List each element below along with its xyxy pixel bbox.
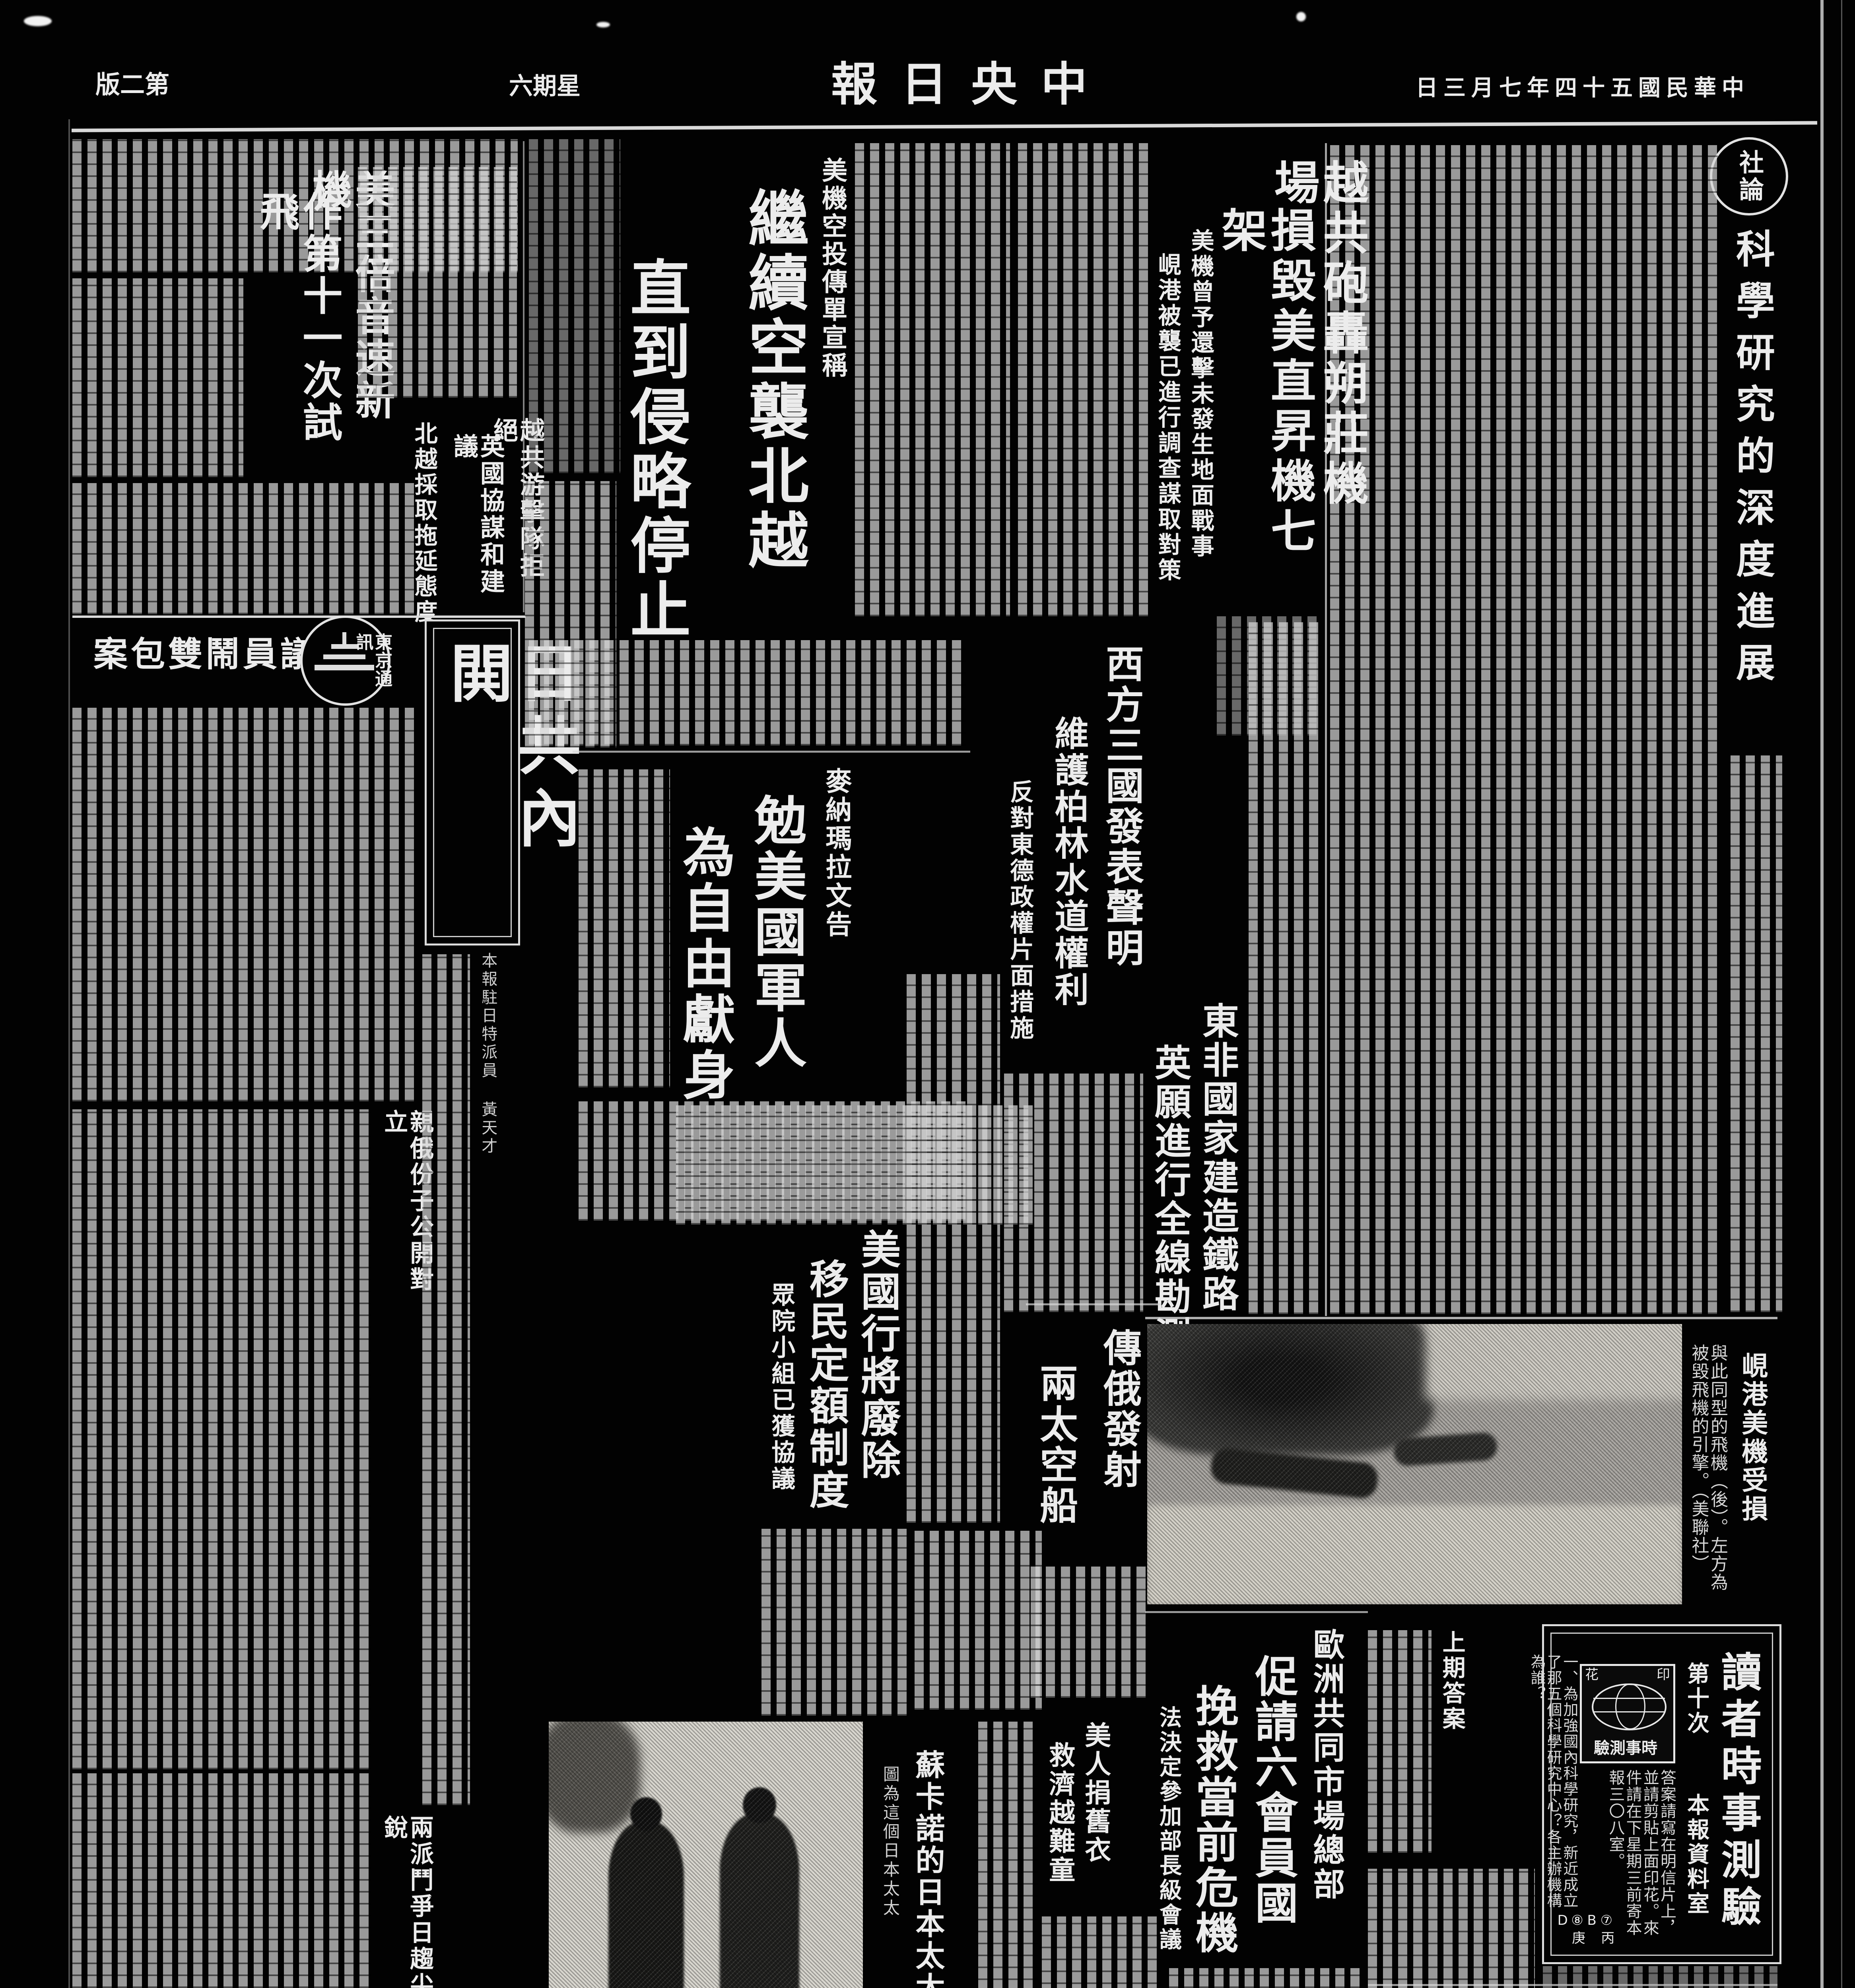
immigration-subhead: 眾院小組已獲協議 [768, 1282, 794, 1505]
sukarno-caption-title: 蘇卡諾的日本太太 [911, 1749, 943, 1988]
body-text-block [907, 974, 1000, 1523]
tokyo-correspondence-label: 東京通訊 [354, 633, 391, 697]
soviet-ships-headline-1: 傳俄發射 [1098, 1328, 1140, 1519]
scan-speck [1296, 12, 1306, 21]
quiz-stamp-bottom-label: 時事測驗 [1594, 1740, 1657, 1757]
globe-parallel [1593, 1698, 1665, 1699]
main-subhead-2: 峴港被襲已進行調查謀取對策 [1155, 252, 1180, 630]
berlin-headline-2: 維護柏林水道權利 [1050, 716, 1087, 1034]
photo-grain [549, 1722, 863, 1988]
page-number-label: 第二版 [95, 72, 169, 98]
body-text-block [1368, 1869, 1535, 1988]
editorial-emblem-label: 社論 [1736, 149, 1762, 204]
charity-line1: 美人捐舊衣 [1082, 1722, 1110, 1881]
berlin-headline-1: 西方三國發表聲明 [1101, 644, 1142, 990]
body-text-block [72, 483, 414, 614]
column-rule [523, 141, 524, 612]
body-text-block [579, 769, 670, 1087]
body-text-block [72, 278, 243, 477]
globe-parallel [1593, 1711, 1665, 1712]
weekday-label: 星期六 [509, 74, 581, 99]
body-text-block [915, 1531, 1042, 1710]
charity-line2: 救濟越難童 [1046, 1741, 1074, 1901]
mcnamara-headline-2: 為自由獻身 [676, 825, 733, 1103]
ecm-subhead: 法決定參加部長級會議 [1156, 1706, 1180, 1964]
quiz-prev-answers-label: 上期答案 [1439, 1630, 1465, 1749]
berlin-headline-3: 反對東德政權片面措施 [1007, 779, 1033, 1066]
quiz-stamp: 花 印 時事測驗 [1580, 1664, 1675, 1763]
section-rule [1368, 1984, 1777, 1986]
immigration-headline-2: 移民定額制度 [804, 1258, 847, 1517]
africa-rail-headline-1: 東非國家建造鐵路 [1198, 1002, 1237, 1332]
body-text-block [978, 1722, 1038, 1988]
jcp-headline-box: 日共內閧 [425, 619, 520, 945]
quiz-title: 讀者時事測驗 [1716, 1651, 1760, 1933]
tokyo-correspondence-logo: 東京通訊 [300, 615, 390, 706]
ecm-headline-2: 促請六會員國 [1249, 1654, 1296, 1948]
photo-sukarno-japanese-wife [549, 1722, 863, 1988]
leaflets-headline-2: 直到侵略停止 [622, 256, 688, 646]
mcnamara-kicker: 麥納瑪拉文告 [822, 767, 851, 954]
left-margin-line [68, 119, 70, 1988]
vc-refusal-line3: 北越採取拖延態度 [412, 421, 437, 628]
body-text-block [72, 1773, 371, 1988]
section-rule [1145, 1611, 1368, 1613]
quiz-answers: ⑦丙B ⑧庚D [1555, 1912, 1614, 1956]
pagoda-icon-spire [342, 632, 346, 644]
leaflets-kicker: 美機空投傳單宣稱 [818, 157, 846, 396]
mcnamara-headline-1: 勉美國軍人 [748, 793, 804, 1072]
body-text-block [1031, 1567, 1150, 1698]
quiz-stamp-corner-right: 印 [1657, 1668, 1670, 1682]
danang-photo-caption: 與此同型的飛機（後）。左方為被毀飛機的引擎。（美聯社） [1689, 1344, 1727, 1598]
body-text-block [1368, 1630, 1432, 1853]
body-text-block [676, 1105, 1034, 1225]
scan-speck [24, 16, 52, 26]
body-text-block [72, 708, 414, 1101]
scan-speck [596, 22, 610, 27]
quiz-stamp-corner-left: 花 [1585, 1668, 1599, 1682]
body-text-block [1018, 143, 1149, 616]
newspaper-page-scan: 第二版 星期六 中央日報 中華民國五十四年七月三日 社論 科學研究的深度進展 越… [0, 0, 1855, 1988]
editorial-headline: 科學研究的深度進展 [1731, 229, 1773, 730]
quiz-unit: 本報資料室 [1684, 1793, 1708, 1928]
body-text-block [422, 954, 470, 1805]
body-text-block [1731, 755, 1782, 1312]
body-text-block [525, 481, 616, 747]
jcp-subhead-factions: 兩派鬥爭日趨尖銳 [381, 1815, 433, 1988]
main-headline-line2: 損毀美直昇機七架 [1216, 207, 1314, 604]
body-text-block [529, 139, 620, 473]
quiz-edition: 第十次 [1684, 1662, 1708, 1781]
jcp-byline: 本報駐日特派員 黃天才 [479, 952, 496, 1175]
globe-icon [1592, 1683, 1667, 1730]
body-text-block [1249, 622, 1322, 1314]
photo-grain [1147, 1324, 1682, 1604]
section-rule [72, 615, 526, 618]
quiz-box: 讀者時事測驗 第十次 本報資料室 花 印 時事測驗 答案請寫在明信片上，並請剪貼… [1542, 1624, 1781, 1964]
film-edge-line [1820, 0, 1824, 1988]
ecm-headline-1: 歐洲共同市場總部 [1309, 1628, 1343, 1906]
film-edge-line-2 [1841, 0, 1842, 1988]
xb70-headline-2: 作第十一次試飛 [254, 191, 340, 485]
editorial-emblem: 社論 [1710, 137, 1788, 215]
body-text-block [1330, 145, 1718, 1314]
publication-date: 中華民國五十四年七月三日 [1416, 76, 1750, 100]
masthead-title: 中央日報 [831, 60, 1111, 109]
soviet-ships-headline-2: 兩太空船 [1035, 1364, 1076, 1555]
body-text-block [1169, 1968, 1360, 1988]
body-text-block [855, 143, 1010, 616]
body-text-block [1042, 1916, 1161, 1988]
photo-damaged-aircraft [1147, 1324, 1682, 1604]
immigration-headline-1: 美國行將廢除 [856, 1229, 899, 1487]
section-rule [1026, 1303, 1161, 1305]
vc-refusal-line2: 英國協謀和建議 [450, 433, 503, 620]
main-subhead-1: 美機曾予還擊未發生地面戰事 [1188, 229, 1213, 606]
quiz-question: 一、為加強國內科學研究，新近成立了那五個科學研究中心？各主辦機構為誰？ [1555, 1654, 1577, 1908]
section-rule [573, 751, 970, 753]
ecm-headline-3: 挽救當前危機 [1190, 1684, 1236, 1978]
photo-top-rule [1145, 1317, 1777, 1319]
danang-photo-title: 峴港美機受損 [1738, 1352, 1767, 1543]
body-text-block [761, 1529, 909, 1716]
globe-meridian [1615, 1683, 1645, 1730]
leaflets-headline-1: 繼續空襲北越 [740, 187, 806, 577]
body-text-block [72, 1109, 371, 1769]
sukarno-caption-text: 圖為這個日本太太 [881, 1765, 899, 1964]
header-rule [72, 121, 1817, 132]
body-text-block [358, 167, 517, 398]
